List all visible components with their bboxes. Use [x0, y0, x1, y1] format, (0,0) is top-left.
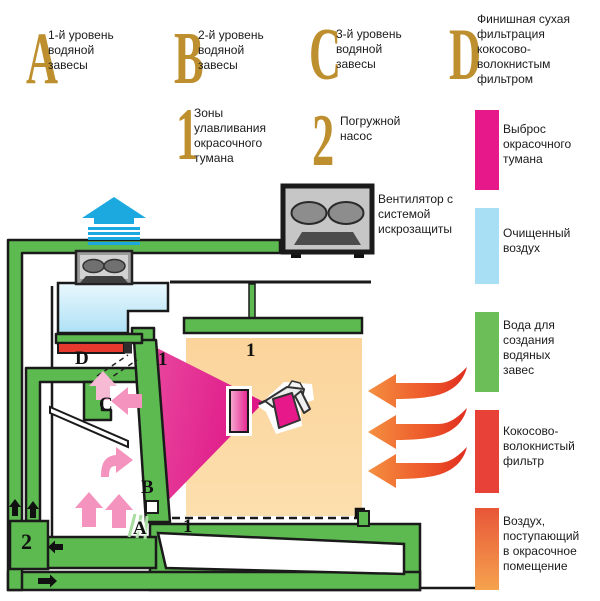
fan-legend-text: Вентилятор с системой искрозащиты [378, 192, 453, 237]
legend-text-a: 1-й уровень водяной завесы [48, 28, 114, 73]
swatch-curtain-water [475, 312, 499, 392]
swatch-clean-air [475, 208, 499, 284]
intake-air-arrows [368, 367, 467, 488]
bottom-pipe [8, 572, 420, 590]
label-level-d: D [75, 349, 89, 368]
tank-edge-tab [358, 511, 369, 526]
legend-text-2: Погружной насос [340, 114, 400, 144]
booth-diagram [0, 0, 600, 601]
legend-text-clean-air: Очищенный воздух [503, 226, 598, 256]
clean-air-chamber [58, 283, 168, 333]
curtain-b-window [146, 501, 158, 513]
filter-support-bar [56, 334, 142, 343]
label-zone1-floor: 1 [183, 517, 193, 536]
legend-text-coco-filter: Кокосово- волокнистый фильтр [503, 424, 598, 469]
pump-suction-duct [46, 537, 156, 568]
workpiece [226, 386, 252, 436]
water-tank [8, 511, 479, 590]
legend-text-d: Финишная сухая фильтрация кокосово- воло… [477, 12, 570, 87]
swatch-paint-mist [475, 110, 499, 190]
swatch-coco-filter [475, 410, 499, 493]
legend-marker-2: 2 [312, 112, 334, 170]
legend-text-paint-mist: Выброс окрасочного тумана [503, 122, 598, 167]
exhaust-air-arrow [82, 197, 146, 245]
label-level-a: A [133, 519, 147, 538]
fan-icon [283, 186, 372, 258]
label-zone1-room: 1 [246, 341, 256, 360]
legend-text-curtain-water: Вода для создания водяных завес [503, 318, 598, 378]
room-ceiling-bar [184, 318, 362, 333]
legend-text-b: 2-й уровень водяной завесы [198, 28, 264, 73]
legend-text-1: Зоны улавливания окрасочного тумана [194, 106, 266, 166]
workpiece-hanger-rod [249, 284, 255, 319]
legend-text-c: 3-й уровень водяной завесы [336, 27, 402, 72]
label-pump: 2 [21, 531, 32, 553]
legend-text-intake-air: Воздух, поступающий в окрасочное помещен… [503, 514, 598, 574]
label-level-c: C [99, 395, 113, 414]
swatch-intake-air [475, 508, 499, 590]
label-level-b: B [141, 478, 154, 497]
booth-fan-unit [76, 251, 132, 284]
coco-filter-bar [58, 343, 132, 354]
infographic-spray-booth: A 1-й уровень водяной завесы B 2-й урове… [0, 0, 600, 601]
label-zone1-curtain: 1 [158, 350, 168, 369]
